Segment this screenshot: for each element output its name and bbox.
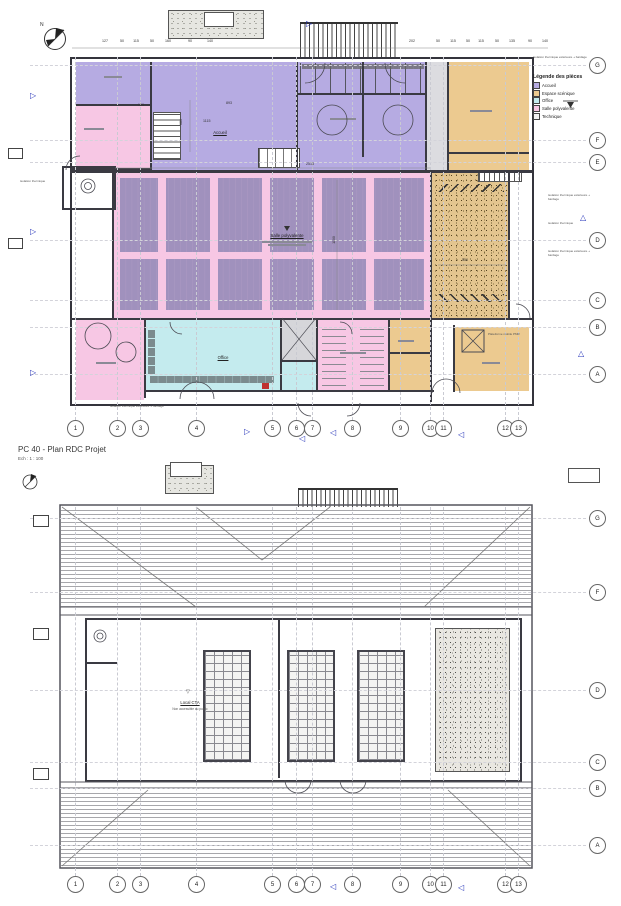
dim-top: 160 — [161, 39, 175, 43]
section-marker: ▷ — [306, 20, 312, 28]
bike-racks — [298, 488, 398, 507]
grid-col-bubble: 11 — [435, 420, 452, 437]
grid-row-bubble: F — [589, 132, 606, 149]
grid-row-bubble: D — [589, 682, 606, 699]
annotation: isolation thermique extérieure + bardage — [548, 194, 596, 201]
grid-line — [430, 507, 431, 876]
legend-item: Salle polyvalente — [533, 105, 611, 113]
grid-line — [312, 507, 313, 876]
section-marker: △ — [580, 214, 586, 222]
grid-col-bubble: 8 — [344, 876, 361, 893]
side-marker — [33, 768, 49, 780]
grid-col-bubble: 6 — [288, 876, 305, 893]
grid-row-bubble: F — [589, 584, 606, 601]
dim-top: 115 — [446, 39, 460, 43]
legend-item: Espace scénique — [533, 90, 611, 98]
dim-top: 90 — [183, 39, 197, 43]
grid-line — [30, 300, 586, 301]
grid-col-bubble: 3 — [132, 876, 149, 893]
grid-col-bubble: 4 — [188, 420, 205, 437]
exterior-box — [170, 462, 202, 477]
dim-top: 202 — [405, 39, 419, 43]
grid-col-bubble: 5 — [264, 420, 281, 437]
dim-top: 90 — [523, 39, 537, 43]
wall — [144, 390, 434, 392]
wall — [316, 318, 318, 392]
wall — [298, 93, 426, 95]
wall — [150, 62, 152, 170]
legend-label: Espace scénique — [542, 91, 575, 96]
grid-line — [518, 507, 519, 876]
grid-line — [196, 57, 197, 420]
office-label: Office — [198, 355, 248, 360]
legend: Légende des pièces Accueil Espace scéniq… — [533, 74, 611, 120]
dim-interior: 1115 — [203, 119, 210, 123]
bike-racks — [300, 22, 398, 57]
grid-line — [140, 507, 141, 876]
wall — [282, 360, 316, 362]
dim-interior: 680 — [179, 119, 183, 125]
wall — [280, 318, 282, 392]
grid-line — [400, 57, 401, 420]
label-smudge — [262, 241, 312, 243]
grid-line — [30, 374, 586, 375]
grid-row-bubble: B — [589, 780, 606, 797]
side-marker — [33, 628, 49, 640]
section-marker: ◁ — [458, 431, 464, 439]
grid-line — [30, 845, 586, 846]
grid-line — [505, 57, 506, 420]
wall — [278, 620, 280, 778]
section-marker: ◁ — [330, 883, 336, 891]
label-smudge — [482, 362, 500, 364]
dim-top: 50 — [145, 39, 159, 43]
grid-line — [196, 507, 197, 876]
dim-top: 50 — [461, 39, 475, 43]
grid-line — [30, 518, 586, 519]
wall — [390, 352, 430, 354]
grid-col-bubble: 9 — [392, 876, 409, 893]
label-smudge — [330, 118, 356, 120]
sheet-title: PC 40 - Plan RDC Projet — [18, 445, 106, 454]
grid-row-bubble: C — [589, 754, 606, 771]
dim-top: 135 — [505, 39, 519, 43]
north-arrow — [45, 28, 66, 50]
section-marker: ▷ — [30, 369, 36, 377]
section-marker: △ — [578, 350, 584, 358]
section-marker: ◁ — [330, 429, 336, 437]
dim-top: 127 — [98, 39, 112, 43]
grid-line — [75, 507, 76, 876]
grid-line — [117, 507, 118, 876]
level-mark: ▽ — [186, 690, 190, 695]
grid-line — [296, 507, 297, 876]
grid-row-bubble: D — [589, 232, 606, 249]
grid-line — [30, 65, 586, 66]
grid-col-bubble: 6 — [288, 420, 305, 437]
grid-line — [443, 507, 444, 876]
annotation: isolation thermique extérieure + bardage — [110, 405, 172, 409]
dim-top: 50 — [490, 39, 504, 43]
grid-col-bubble: 3 — [132, 420, 149, 437]
grid-line — [30, 140, 586, 141]
grid-line — [312, 57, 313, 420]
label-smudge — [84, 128, 104, 130]
grid-row-bubble: A — [589, 837, 606, 854]
grid-col-bubble: 4 — [188, 876, 205, 893]
grid-col-bubble: 5 — [264, 876, 281, 893]
dim-top: 140 — [538, 39, 552, 43]
grid-line — [352, 507, 353, 876]
grid-col-bubble: 11 — [435, 876, 452, 893]
legend-swatch-technique — [533, 113, 540, 120]
dim-interior: 1100 — [332, 236, 336, 244]
grid-line — [75, 57, 76, 420]
section-marker: ◁ — [458, 884, 464, 892]
legend-item: Office — [533, 97, 611, 105]
dim-top: 140 — [203, 39, 217, 43]
legend-swatch-accueil — [533, 82, 540, 89]
cta-label: Local CTA — [138, 700, 242, 705]
grid-col-bubble: 2 — [109, 420, 126, 437]
section-marker: ▷ — [30, 228, 36, 236]
dim-top: 115 — [129, 39, 143, 43]
grid-row-bubble: E — [589, 154, 606, 171]
legend-title: Légende des pièces — [533, 74, 611, 80]
grid-line — [352, 57, 353, 420]
grid-line — [30, 788, 586, 789]
grid-line — [400, 507, 401, 876]
grid-line — [30, 690, 586, 691]
grid-line — [296, 57, 297, 420]
wall — [508, 172, 510, 318]
grid-row-bubble: C — [589, 292, 606, 309]
grid-col-bubble: 7 — [304, 420, 321, 437]
hall-label: Salle polyvalente — [254, 233, 320, 238]
grid-row-bubble: G — [589, 510, 606, 527]
dim-top: 50 — [431, 39, 445, 43]
exterior-box — [568, 468, 600, 483]
legend-swatch-polyvalente — [533, 105, 540, 112]
grid-line — [272, 57, 273, 420]
skylight-grid — [357, 650, 405, 762]
grid-row-bubble: A — [589, 366, 606, 383]
side-marker — [8, 148, 23, 159]
annotation: isolation thermique extérieure + bardage — [548, 250, 596, 257]
grid-line — [505, 507, 506, 876]
side-marker — [8, 238, 23, 249]
annotation: isolation thermique — [20, 180, 58, 184]
wall — [85, 662, 117, 664]
annotation: isolation thermique — [548, 222, 596, 226]
grid-row-bubble: G — [589, 57, 606, 74]
grid-line — [140, 57, 141, 420]
legend-note: isolation thermique extérieure + bardage — [533, 56, 591, 60]
north-arrow-small — [23, 474, 37, 489]
legend-item: Technique — [533, 112, 611, 120]
dim-top: 50 — [115, 39, 129, 43]
wall — [449, 152, 529, 154]
grid-line — [272, 507, 273, 876]
legend-swatch-office — [533, 97, 540, 104]
dim-interior: 2513 — [306, 162, 314, 166]
legend-label: Accueil — [542, 83, 556, 88]
grid-row-bubble: B — [589, 319, 606, 336]
grid-line — [30, 762, 586, 763]
north-label: N — [40, 22, 44, 28]
grid-col-bubble: 1 — [67, 420, 84, 437]
dim-interior: 550 — [462, 258, 468, 262]
label-smudge — [470, 110, 492, 112]
dim-interior: 160 — [138, 103, 144, 107]
grid-line — [518, 57, 519, 420]
legend-label: Office — [542, 98, 553, 103]
grid-col-bubble: 9 — [392, 420, 409, 437]
grid-line — [430, 57, 431, 420]
label-smudge — [96, 362, 116, 364]
grid-col-bubble: 7 — [304, 876, 321, 893]
grid-line — [30, 592, 586, 593]
grid-col-bubble: 13 — [510, 876, 527, 893]
exterior-box — [204, 12, 234, 27]
wall — [425, 62, 427, 170]
wall — [362, 62, 364, 157]
skylight-grid — [203, 650, 251, 762]
pmr-annotation: Plateforme mobile PMR — [488, 333, 528, 337]
cta-note: Non accessible au public — [138, 707, 242, 711]
legend-swatch-scenique — [533, 90, 540, 97]
dim-top: 115 — [474, 39, 488, 43]
wall — [144, 318, 146, 398]
grid-col-bubble: 8 — [344, 420, 361, 437]
wall — [453, 325, 455, 392]
grid-line — [443, 57, 444, 420]
grid-line — [117, 57, 118, 420]
skylight-grid — [287, 650, 335, 762]
label-smudge — [340, 352, 366, 354]
accueil-label: Accueil — [190, 130, 250, 135]
label-smudge — [398, 340, 414, 342]
legend-label: Salle polyvalente — [542, 106, 575, 111]
label-smudge — [104, 76, 122, 78]
sheet-scale: Ech : 1 : 100 — [18, 456, 43, 461]
grid-col-bubble: 2 — [109, 876, 126, 893]
side-marker — [33, 515, 49, 527]
grid-col-bubble: 13 — [510, 420, 527, 437]
dim-interior: 893 — [226, 101, 232, 105]
grid-col-bubble: 1 — [67, 876, 84, 893]
wall — [388, 318, 390, 392]
label-smudge — [268, 244, 306, 246]
drawing-sheet: Salle polyvalente Accueil Office 160 893… — [0, 0, 621, 906]
grid-line — [30, 327, 586, 328]
section-marker: ▷ — [30, 92, 36, 100]
legend-label: Technique — [542, 114, 562, 119]
gravel-roof — [435, 628, 510, 772]
legend-item: Accueil — [533, 82, 611, 90]
wall — [112, 172, 114, 318]
section-marker: ▷ — [244, 428, 250, 436]
